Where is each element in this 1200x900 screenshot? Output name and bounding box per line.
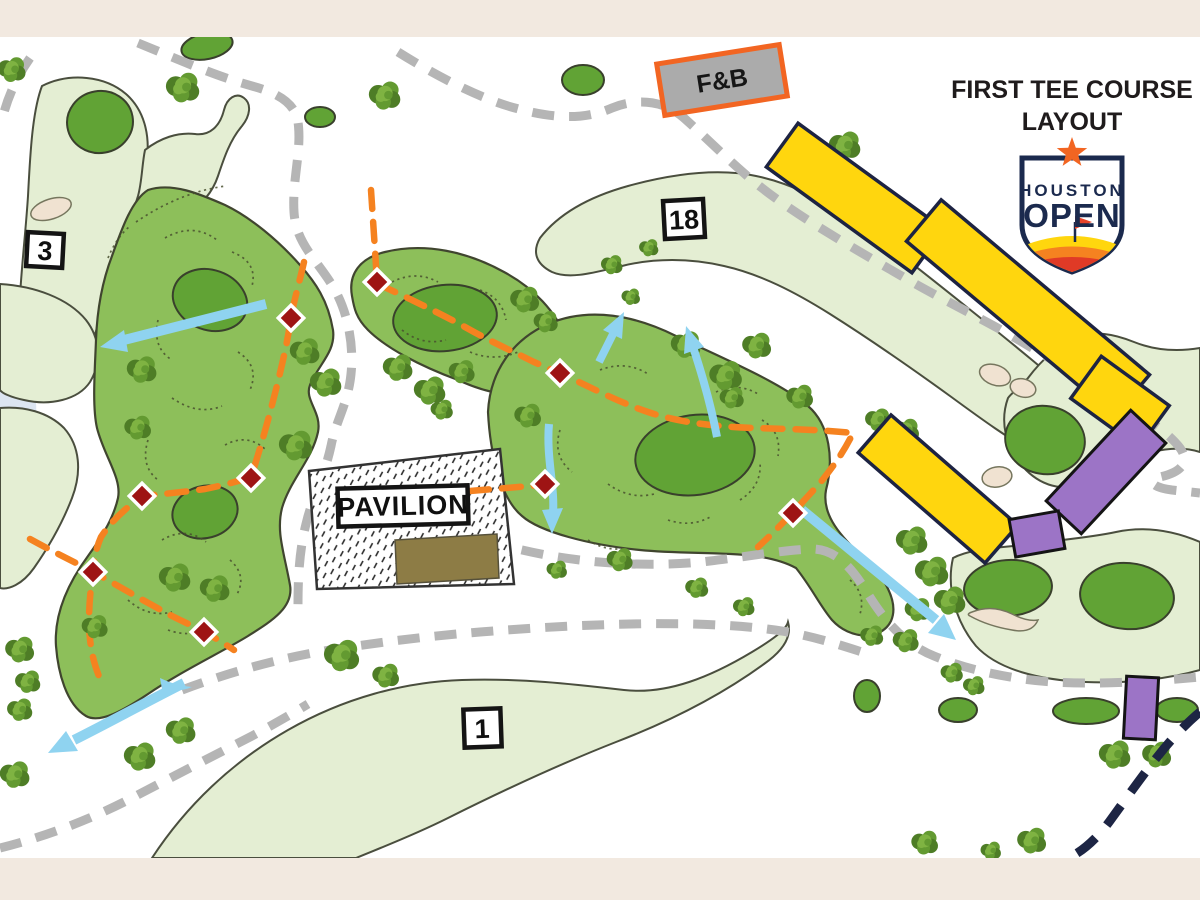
svg-text:PAVILION: PAVILION	[337, 489, 469, 522]
structure-purple-small	[1009, 511, 1065, 557]
title-line-2: LAYOUT	[1022, 108, 1122, 136]
pavilion-structure	[395, 534, 499, 584]
structure-purple-south	[1123, 676, 1158, 740]
svg-text:1: 1	[474, 714, 490, 745]
hole-1-label: 1	[463, 708, 501, 747]
hole-3-label: 3	[26, 232, 64, 268]
pavilion-label: PAVILION	[337, 485, 469, 526]
logo-open-text: OPEN	[1023, 197, 1121, 234]
course-map: F&B PAVILION 3 18 1 FIRST TEE COURSE LAY…	[0, 0, 1200, 900]
title-line-1: FIRST TEE COURSE	[951, 76, 1193, 104]
bottom-border-band	[0, 858, 1200, 900]
svg-text:3: 3	[37, 236, 54, 267]
svg-text:18: 18	[668, 204, 700, 236]
top-border-band	[0, 0, 1200, 37]
hole-18-label: 18	[663, 199, 705, 239]
